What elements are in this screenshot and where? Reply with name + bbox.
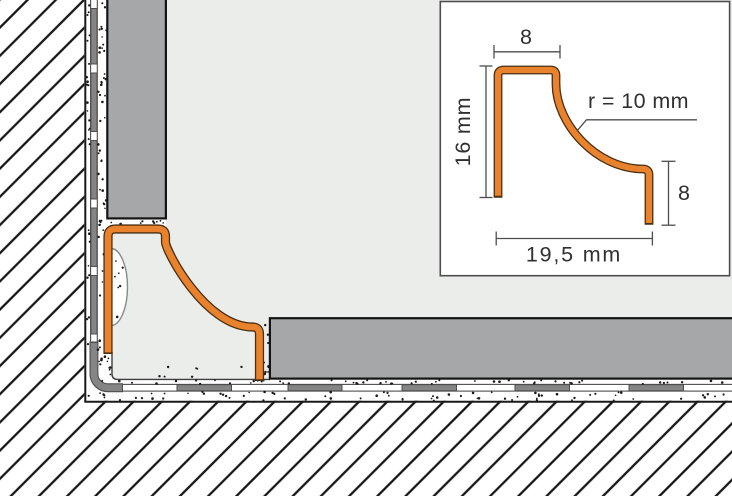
svg-text:8: 8 bbox=[520, 25, 532, 49]
svg-text:16 mm: 16 mm bbox=[451, 97, 475, 167]
svg-text:8: 8 bbox=[678, 181, 690, 205]
svg-text:19,5 mm: 19,5 mm bbox=[526, 243, 622, 267]
svg-text:r = 10 mm: r = 10 mm bbox=[588, 89, 689, 113]
